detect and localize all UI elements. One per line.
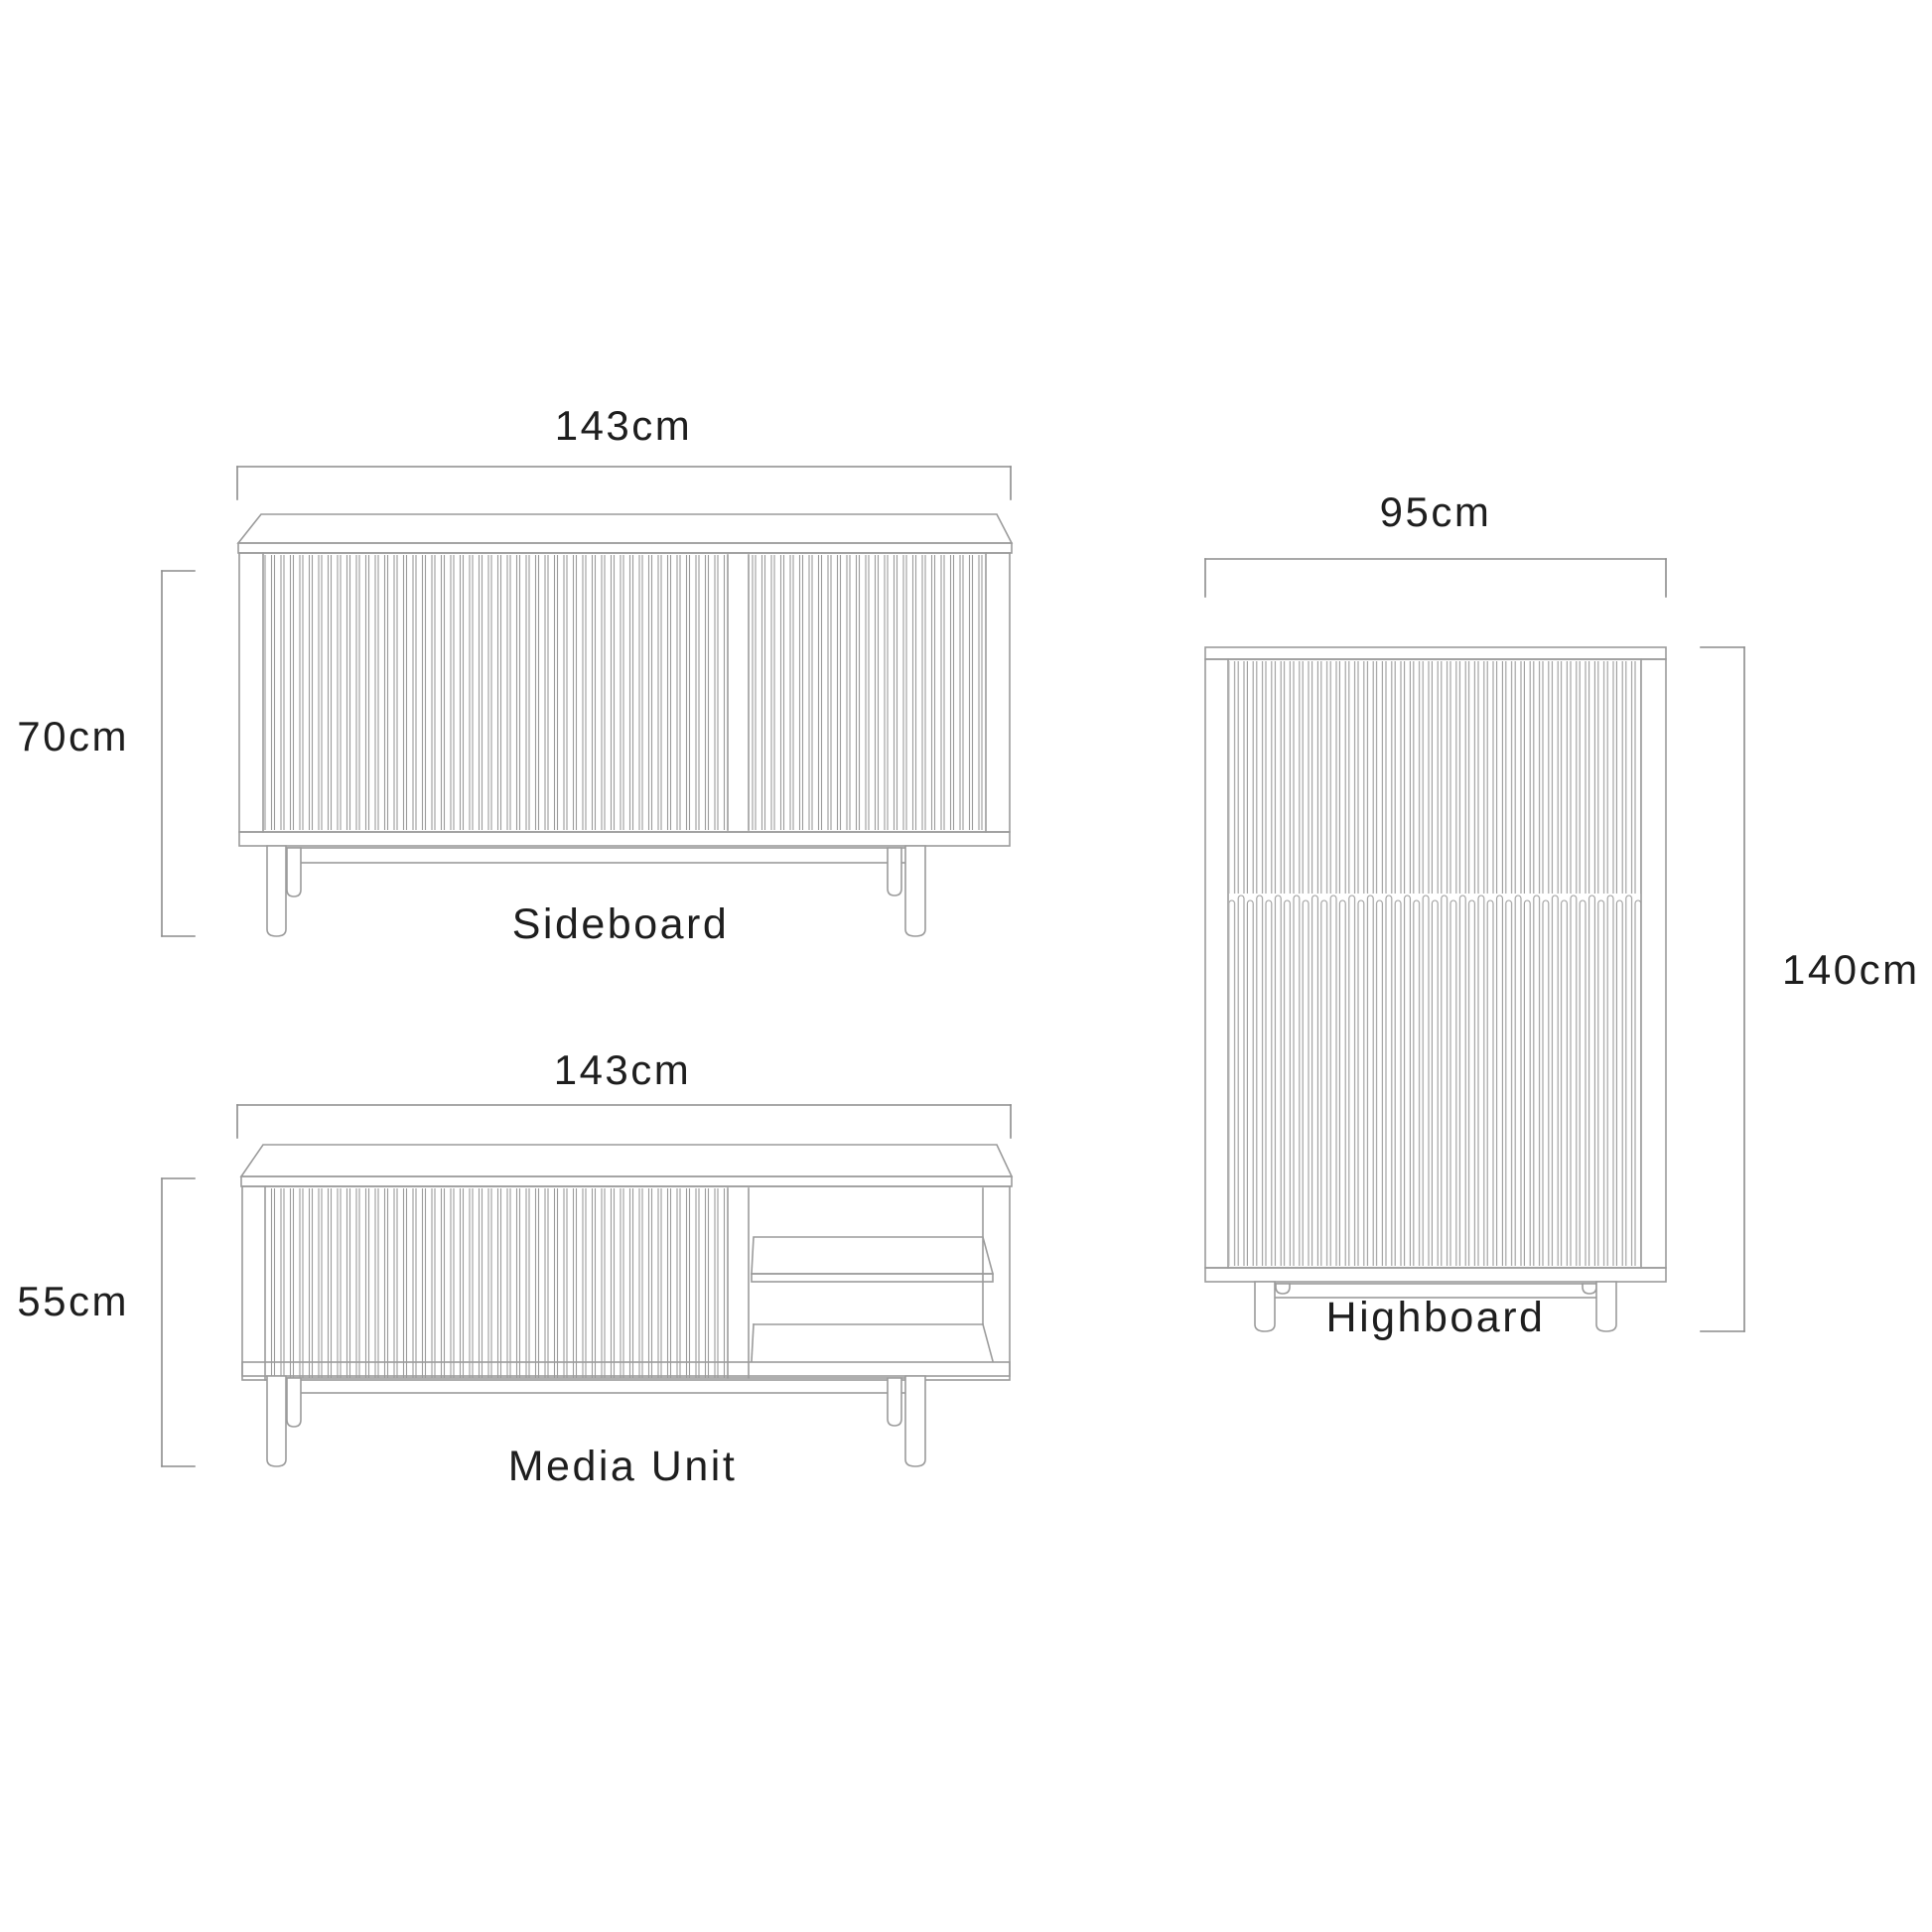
media-unit-front-right-leg <box>905 1376 925 1466</box>
sideboard-door-divider-gap <box>726 554 751 831</box>
highboard-front-left-leg <box>1255 1282 1275 1331</box>
sideboard-label: Sideboard <box>512 900 730 948</box>
media-unit-front-left-leg <box>267 1376 286 1466</box>
highboard-back-right-leg <box>1583 1284 1596 1294</box>
highboard-top-surface <box>1205 647 1666 659</box>
media-unit-compartment-floor-left <box>752 1324 754 1361</box>
media-unit-door-slats <box>266 1188 726 1378</box>
media-unit-top-surface <box>241 1145 1012 1176</box>
media-unit-width-label: 143cm <box>554 1046 692 1093</box>
sideboard-top-fascia <box>238 543 1012 553</box>
sideboard-back-left-leg <box>287 848 301 897</box>
highboard-bottom-rail <box>1205 1268 1666 1282</box>
sideboard-width-label: 143cm <box>555 402 693 449</box>
sideboard-top-surface <box>238 514 1012 543</box>
media-unit-door-stile-gap <box>726 1187 751 1379</box>
highboard-front-right-leg <box>1596 1282 1616 1331</box>
media-unit-drawing <box>241 1145 1012 1466</box>
highboard-width-label: 95cm <box>1380 488 1492 535</box>
media-unit-height-label: 55cm <box>17 1278 129 1324</box>
highboard-door-slats <box>1229 661 1641 1266</box>
highboard-height-dimension <box>1701 647 1744 1331</box>
diagram-svg: 143cm 70cm Sideboard 143cm 55cm Media Un… <box>0 0 1932 1932</box>
media-unit-top-fascia <box>241 1176 1012 1186</box>
media-unit-shelf-top <box>752 1237 993 1274</box>
media-unit-label: Media Unit <box>508 1443 738 1490</box>
sideboard-width-dimension <box>237 467 1011 499</box>
sideboard-back-right-leg <box>888 848 901 896</box>
highboard-width-dimension <box>1205 559 1666 597</box>
media-unit-shelf-edge <box>752 1274 993 1282</box>
sideboard-left-door-slats <box>264 555 726 830</box>
sideboard-bottom-rail <box>239 832 1010 846</box>
media-unit-width-dimension <box>237 1105 1011 1138</box>
highboard-drawing <box>1205 647 1666 1331</box>
media-unit-back-left-leg <box>287 1378 301 1427</box>
media-unit-compartment-floor-side <box>983 1324 993 1361</box>
highboard-back-left-leg <box>1276 1284 1290 1294</box>
sideboard-drawing <box>238 514 1012 936</box>
furniture-dimension-diagram: 143cm 70cm Sideboard 143cm 55cm Media Un… <box>0 0 1932 1932</box>
sideboard-height-dimension <box>162 571 195 936</box>
highboard-height-label: 140cm <box>1782 946 1920 993</box>
sideboard-right-door-slats <box>751 555 986 830</box>
sideboard-apron <box>275 848 916 863</box>
sideboard-height-label: 70cm <box>17 713 129 759</box>
sideboard-front-left-leg <box>267 846 286 936</box>
media-unit-height-dimension <box>162 1178 195 1466</box>
sideboard-front-right-leg <box>905 846 925 936</box>
media-unit-back-right-leg <box>888 1378 901 1426</box>
highboard-label: Highboard <box>1326 1294 1546 1341</box>
